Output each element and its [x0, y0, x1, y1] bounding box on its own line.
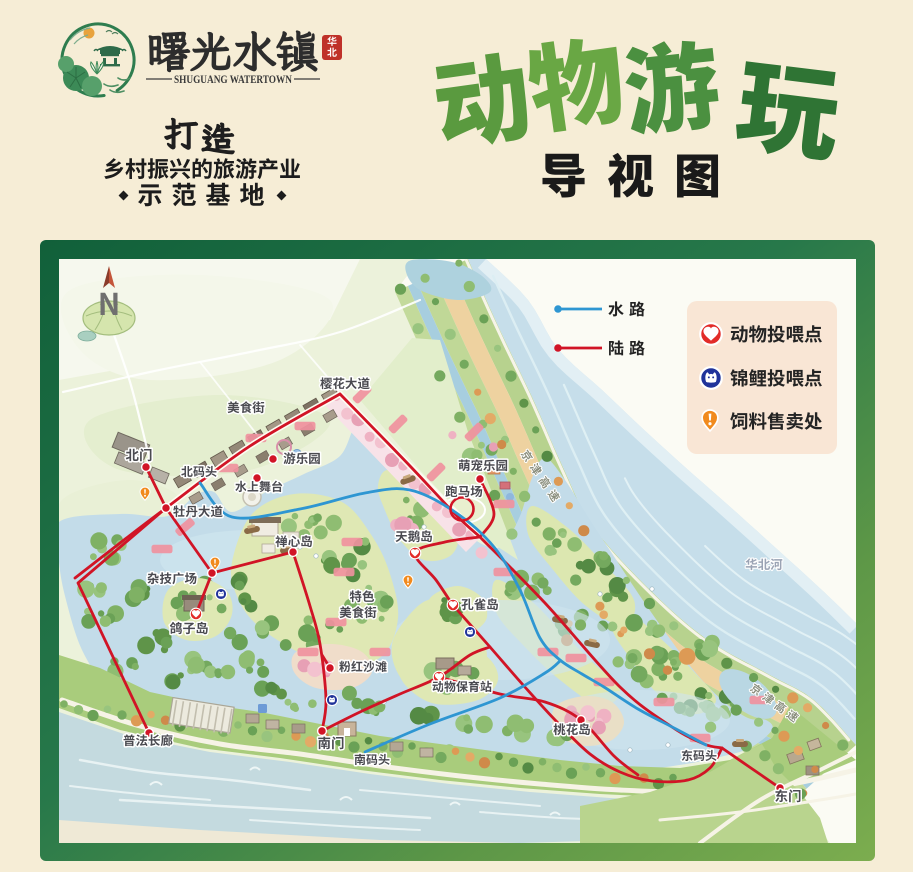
svg-text:SHUGUANG WATERTOWN: SHUGUANG WATERTOWN	[174, 74, 293, 86]
